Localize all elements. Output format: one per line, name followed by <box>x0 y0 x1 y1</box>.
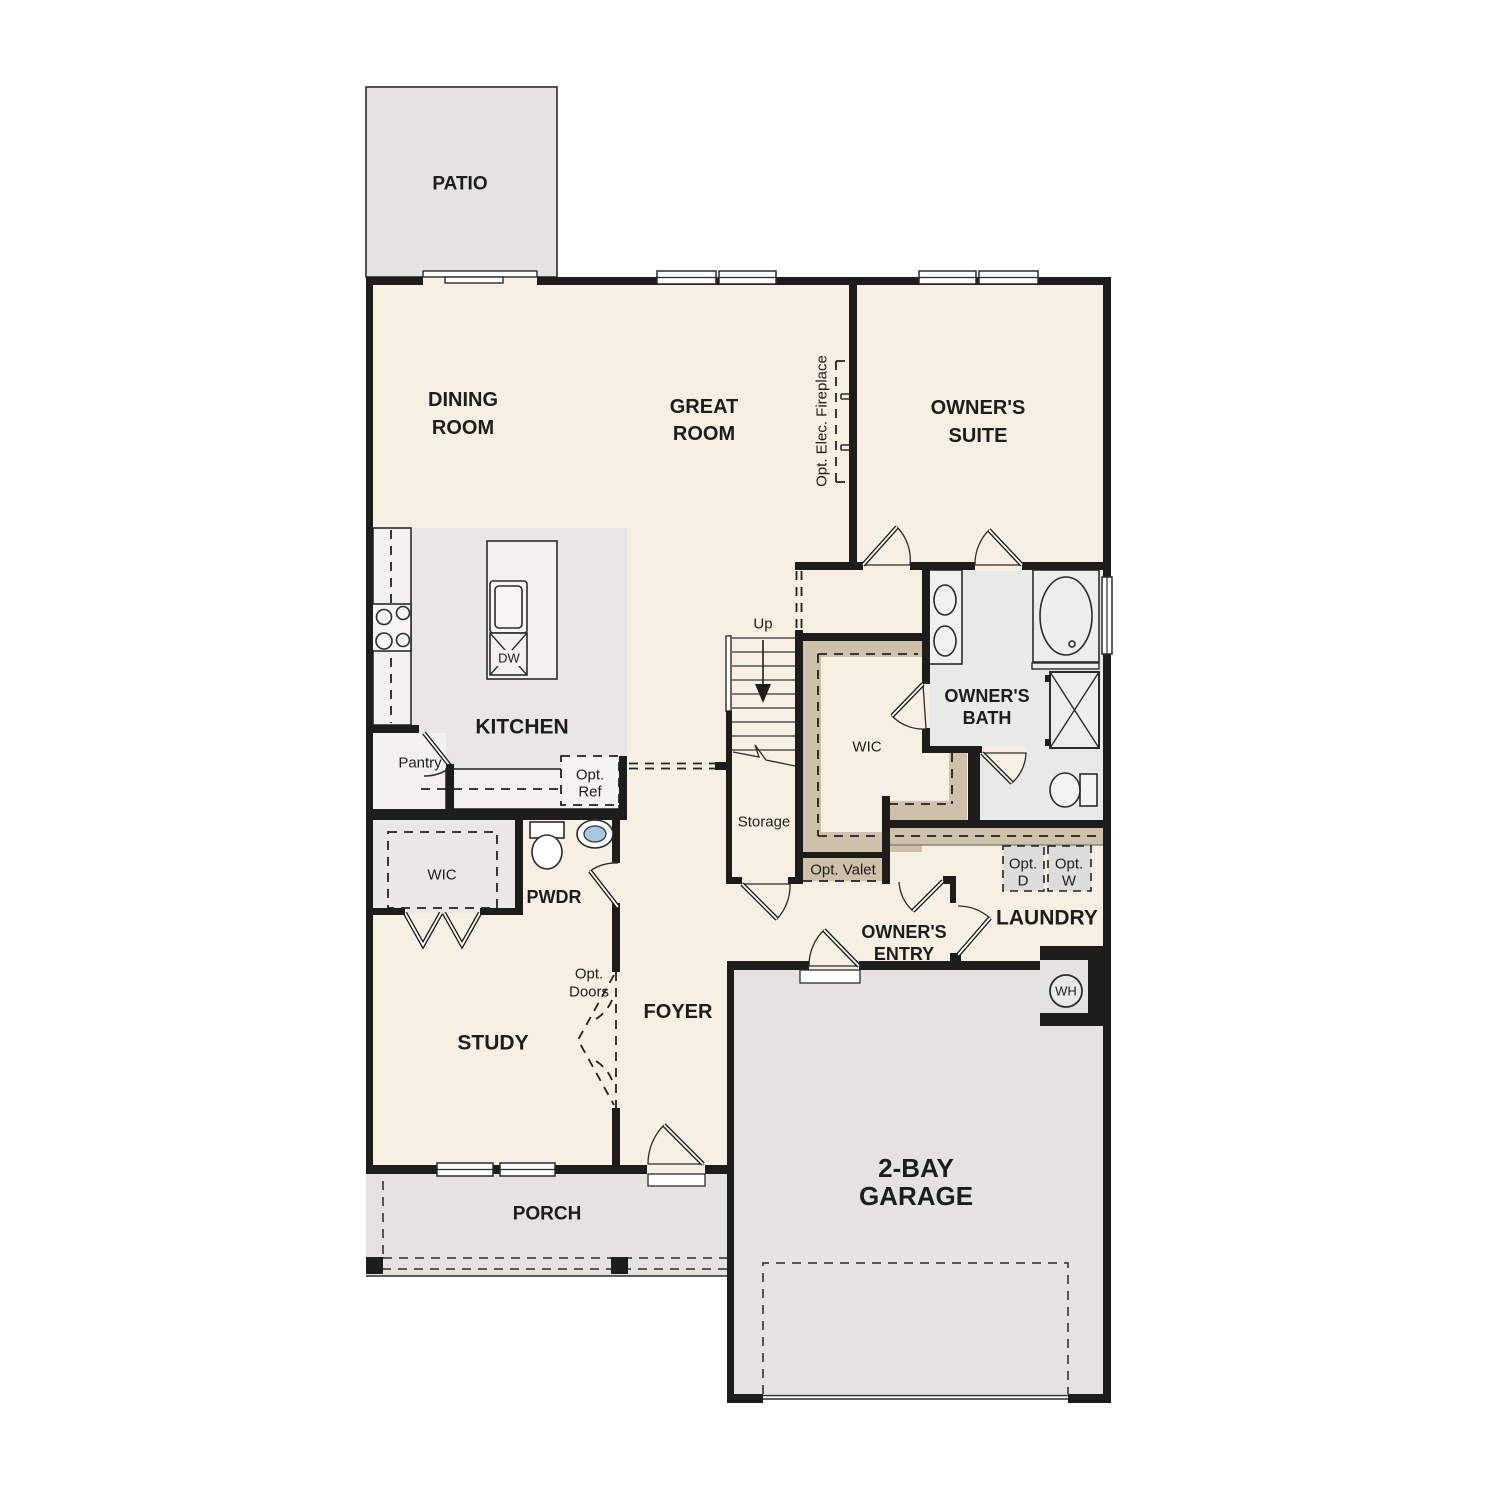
svg-text:Ref: Ref <box>578 784 602 801</box>
svg-text:Opt.: Opt. <box>1055 856 1083 873</box>
svg-text:DINING: DINING <box>428 389 498 411</box>
svg-text:GREAT: GREAT <box>670 396 739 418</box>
svg-text:SUITE: SUITE <box>949 425 1008 447</box>
svg-text:ROOM: ROOM <box>432 417 494 439</box>
svg-text:D: D <box>1018 873 1029 890</box>
svg-text:Storage: Storage <box>738 814 791 831</box>
svg-text:ROOM: ROOM <box>673 423 735 445</box>
svg-text:Opt. Elec. Fireplace: Opt. Elec. Fireplace <box>814 355 831 487</box>
svg-text:KITCHEN: KITCHEN <box>475 716 568 739</box>
svg-text:DW: DW <box>498 651 520 666</box>
svg-text:FOYER: FOYER <box>644 1001 713 1023</box>
svg-text:PORCH: PORCH <box>513 1204 582 1225</box>
svg-text:WH: WH <box>1055 984 1077 999</box>
svg-text:2-BAY: 2-BAY <box>878 1153 954 1183</box>
svg-text:Doors: Doors <box>569 984 609 1001</box>
svg-text:BATH: BATH <box>963 708 1012 728</box>
svg-text:STUDY: STUDY <box>457 1032 528 1055</box>
svg-text:Pantry: Pantry <box>398 755 442 772</box>
svg-text:Opt.: Opt. <box>575 966 603 983</box>
svg-text:W: W <box>1062 873 1077 890</box>
svg-text:OWNER'S: OWNER'S <box>944 686 1029 706</box>
svg-text:WIC: WIC <box>852 739 881 756</box>
svg-text:Opt.: Opt. <box>576 767 604 784</box>
svg-text:WIC: WIC <box>427 867 456 884</box>
svg-text:Opt.: Opt. <box>1009 856 1037 873</box>
svg-text:Up: Up <box>753 616 772 633</box>
svg-text:OWNER'S: OWNER'S <box>931 397 1026 419</box>
svg-text:PATIO: PATIO <box>432 174 487 195</box>
svg-text:GARAGE: GARAGE <box>859 1181 973 1211</box>
svg-text:Opt. Valet: Opt. Valet <box>810 862 876 879</box>
svg-text:PWDR: PWDR <box>527 887 582 907</box>
svg-text:OWNER'S: OWNER'S <box>861 922 946 942</box>
svg-text:LAUNDRY: LAUNDRY <box>996 907 1098 930</box>
